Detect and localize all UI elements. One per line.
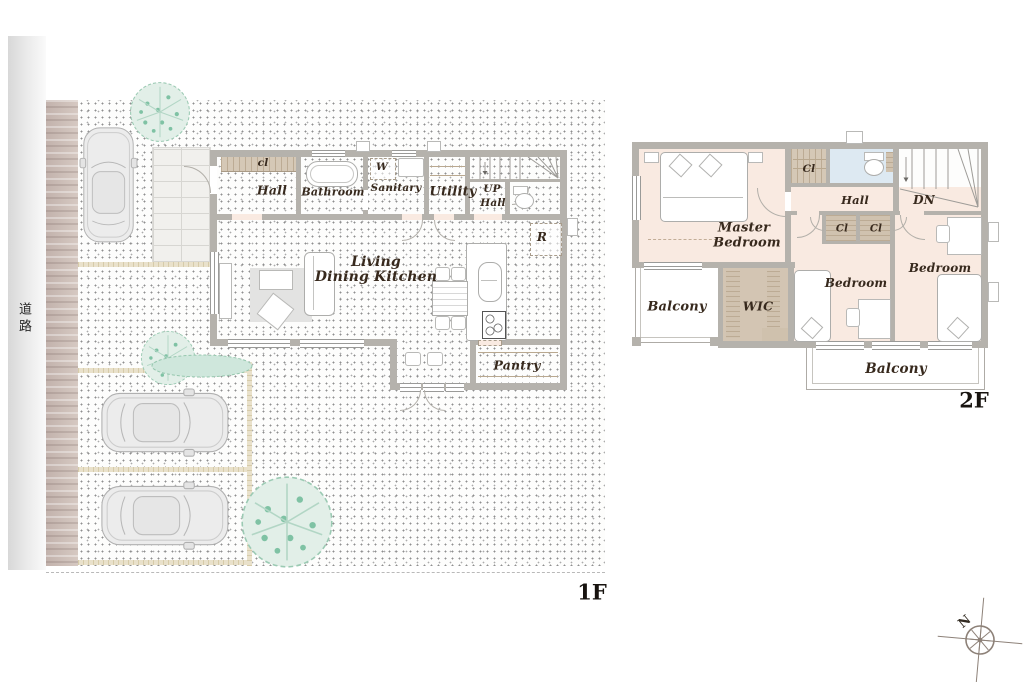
compass-north-label: N <box>956 612 975 631</box>
wall-2f-top <box>632 142 988 149</box>
cl-top-shelf-1 <box>793 159 826 160</box>
bedroom-mid-label: Bedroom <box>825 276 888 290</box>
paving-band-4 <box>78 560 250 565</box>
nightstand-1 <box>644 152 659 163</box>
road-curb-wall <box>46 100 78 566</box>
toilet-basin-2f <box>886 152 893 172</box>
dn-label: DN <box>913 193 935 207</box>
terrace-chair-1 <box>405 352 421 366</box>
garden-door-3 <box>446 383 464 392</box>
entry-door-opening <box>210 166 217 194</box>
site-boundary-line <box>46 572 605 573</box>
window-bath-top <box>312 150 345 157</box>
paving-band-2 <box>78 368 250 373</box>
toilet-bowl-2f <box>864 159 884 176</box>
pantry-door-dash <box>478 340 502 346</box>
wall-san-util <box>424 157 429 214</box>
up-label: UP <box>483 183 500 195</box>
toilet-bowl-1f <box>515 193 534 209</box>
window-ldk-left <box>210 252 219 314</box>
bedroom-right-label: Bedroom <box>909 261 972 275</box>
bathtub-inner <box>310 165 354 183</box>
hall-2f-label: Hall <box>841 193 869 207</box>
road-label: 道路 <box>14 302 33 336</box>
window-san-top <box>392 150 416 157</box>
cooktop <box>482 311 506 339</box>
paving-band-1 <box>78 262 210 267</box>
wall-closet-bottom <box>822 241 894 244</box>
window-ldk-bottom-2 <box>300 339 364 348</box>
shutter-tab-right-2 <box>988 282 999 302</box>
window-master-balcony <box>644 262 702 270</box>
wall-closet-mid <box>856 215 860 244</box>
wall-hall-bath <box>296 157 301 214</box>
sink-divider <box>481 280 497 281</box>
door-tab-top-1 <box>356 141 370 152</box>
terrace-chair-2 <box>427 352 443 366</box>
utility-shelf-2 <box>430 175 465 176</box>
entrance-path <box>152 147 211 263</box>
ldk-label-line2: Dining Kitchen <box>315 269 437 285</box>
hall-2f <box>791 187 981 211</box>
window-balcony-2 <box>872 341 920 350</box>
wall-1f-band <box>217 214 560 220</box>
wall-1f-top <box>210 150 567 157</box>
nightstand-2 <box>748 152 763 163</box>
balcony-left-label: Balcony <box>647 300 706 315</box>
wall-2f-band <box>791 183 893 187</box>
utility-label: Utility <box>429 185 476 200</box>
kitchen-sink <box>478 262 502 302</box>
pantry-shelf-2 <box>478 376 558 377</box>
vanity-counter <box>398 158 424 177</box>
vent-tab-right <box>567 218 578 236</box>
dining-chair-1 <box>435 267 450 281</box>
wall-2f-right <box>981 142 988 348</box>
bathroom-label: Bathroom <box>301 186 364 199</box>
window-ldk-bottom-1 <box>228 339 290 348</box>
paving-band-3 <box>78 467 250 472</box>
wic-label: WIC <box>743 299 773 314</box>
opening-uphall-ldk <box>474 214 502 220</box>
wall-pantry-left <box>470 345 476 383</box>
ldk-label-line1: Living <box>351 254 401 270</box>
shutter-tab-right-1 <box>988 222 999 242</box>
door-tab-2f-top <box>846 131 863 144</box>
floor-2f-label: 2F <box>959 388 989 413</box>
up-hall-label: Hall <box>480 197 506 209</box>
master-label-line1: Master <box>718 221 770 236</box>
paving-band-edge <box>247 362 252 566</box>
wall-1f-right <box>560 150 567 390</box>
master-label-line2: Bedroom <box>713 236 781 251</box>
balcony-bottom-label: Balcony <box>865 361 927 377</box>
desk-mid <box>858 299 891 339</box>
desk-right <box>947 217 982 255</box>
refrigerator-label: R <box>537 230 547 244</box>
floor-plan-canvas: 道路 <box>0 0 1024 682</box>
door-tab-top-2 <box>427 141 441 152</box>
window-balcony-3 <box>928 341 972 350</box>
coffee-table <box>259 270 293 290</box>
bathtub <box>306 161 358 187</box>
tv-board <box>219 263 232 319</box>
wall-stair-base <box>470 179 560 182</box>
closet-1f-label: cl <box>258 157 269 169</box>
wic-shelf-left <box>726 271 740 338</box>
hall-1f-label: Hall <box>257 183 287 198</box>
dining-chair-4 <box>451 316 466 330</box>
master-dashed-line <box>648 239 722 240</box>
closet-a-label: Cl <box>836 224 848 235</box>
dining-chair-3 <box>435 316 450 330</box>
wall-wic-left <box>718 268 723 341</box>
window-balcony-1 <box>816 341 864 350</box>
chair-mid <box>846 308 860 327</box>
dining-table <box>432 281 468 316</box>
opening-hall-ldk <box>232 214 262 220</box>
closet-b-label: Cl <box>870 224 882 235</box>
wall-cl-top-right <box>826 149 830 187</box>
window-master-left <box>632 176 641 220</box>
wall-toilet-right <box>893 149 899 211</box>
sanitary-label: Sanitary <box>371 182 422 194</box>
washer-label: W <box>376 161 388 173</box>
wic-step <box>762 328 788 341</box>
chair-right <box>936 225 950 243</box>
compass: N <box>928 592 1024 682</box>
balcony-post-1 <box>632 337 641 346</box>
closet-2f-top-label: Cl <box>803 163 816 175</box>
utility-shelf-1 <box>430 166 465 167</box>
dining-chair-2 <box>451 267 466 281</box>
pantry-shelf-1 <box>478 352 558 353</box>
floor-1f-label: 1F <box>577 580 607 605</box>
bed-blanket-line <box>663 197 743 198</box>
pantry-label: Pantry <box>493 358 540 373</box>
